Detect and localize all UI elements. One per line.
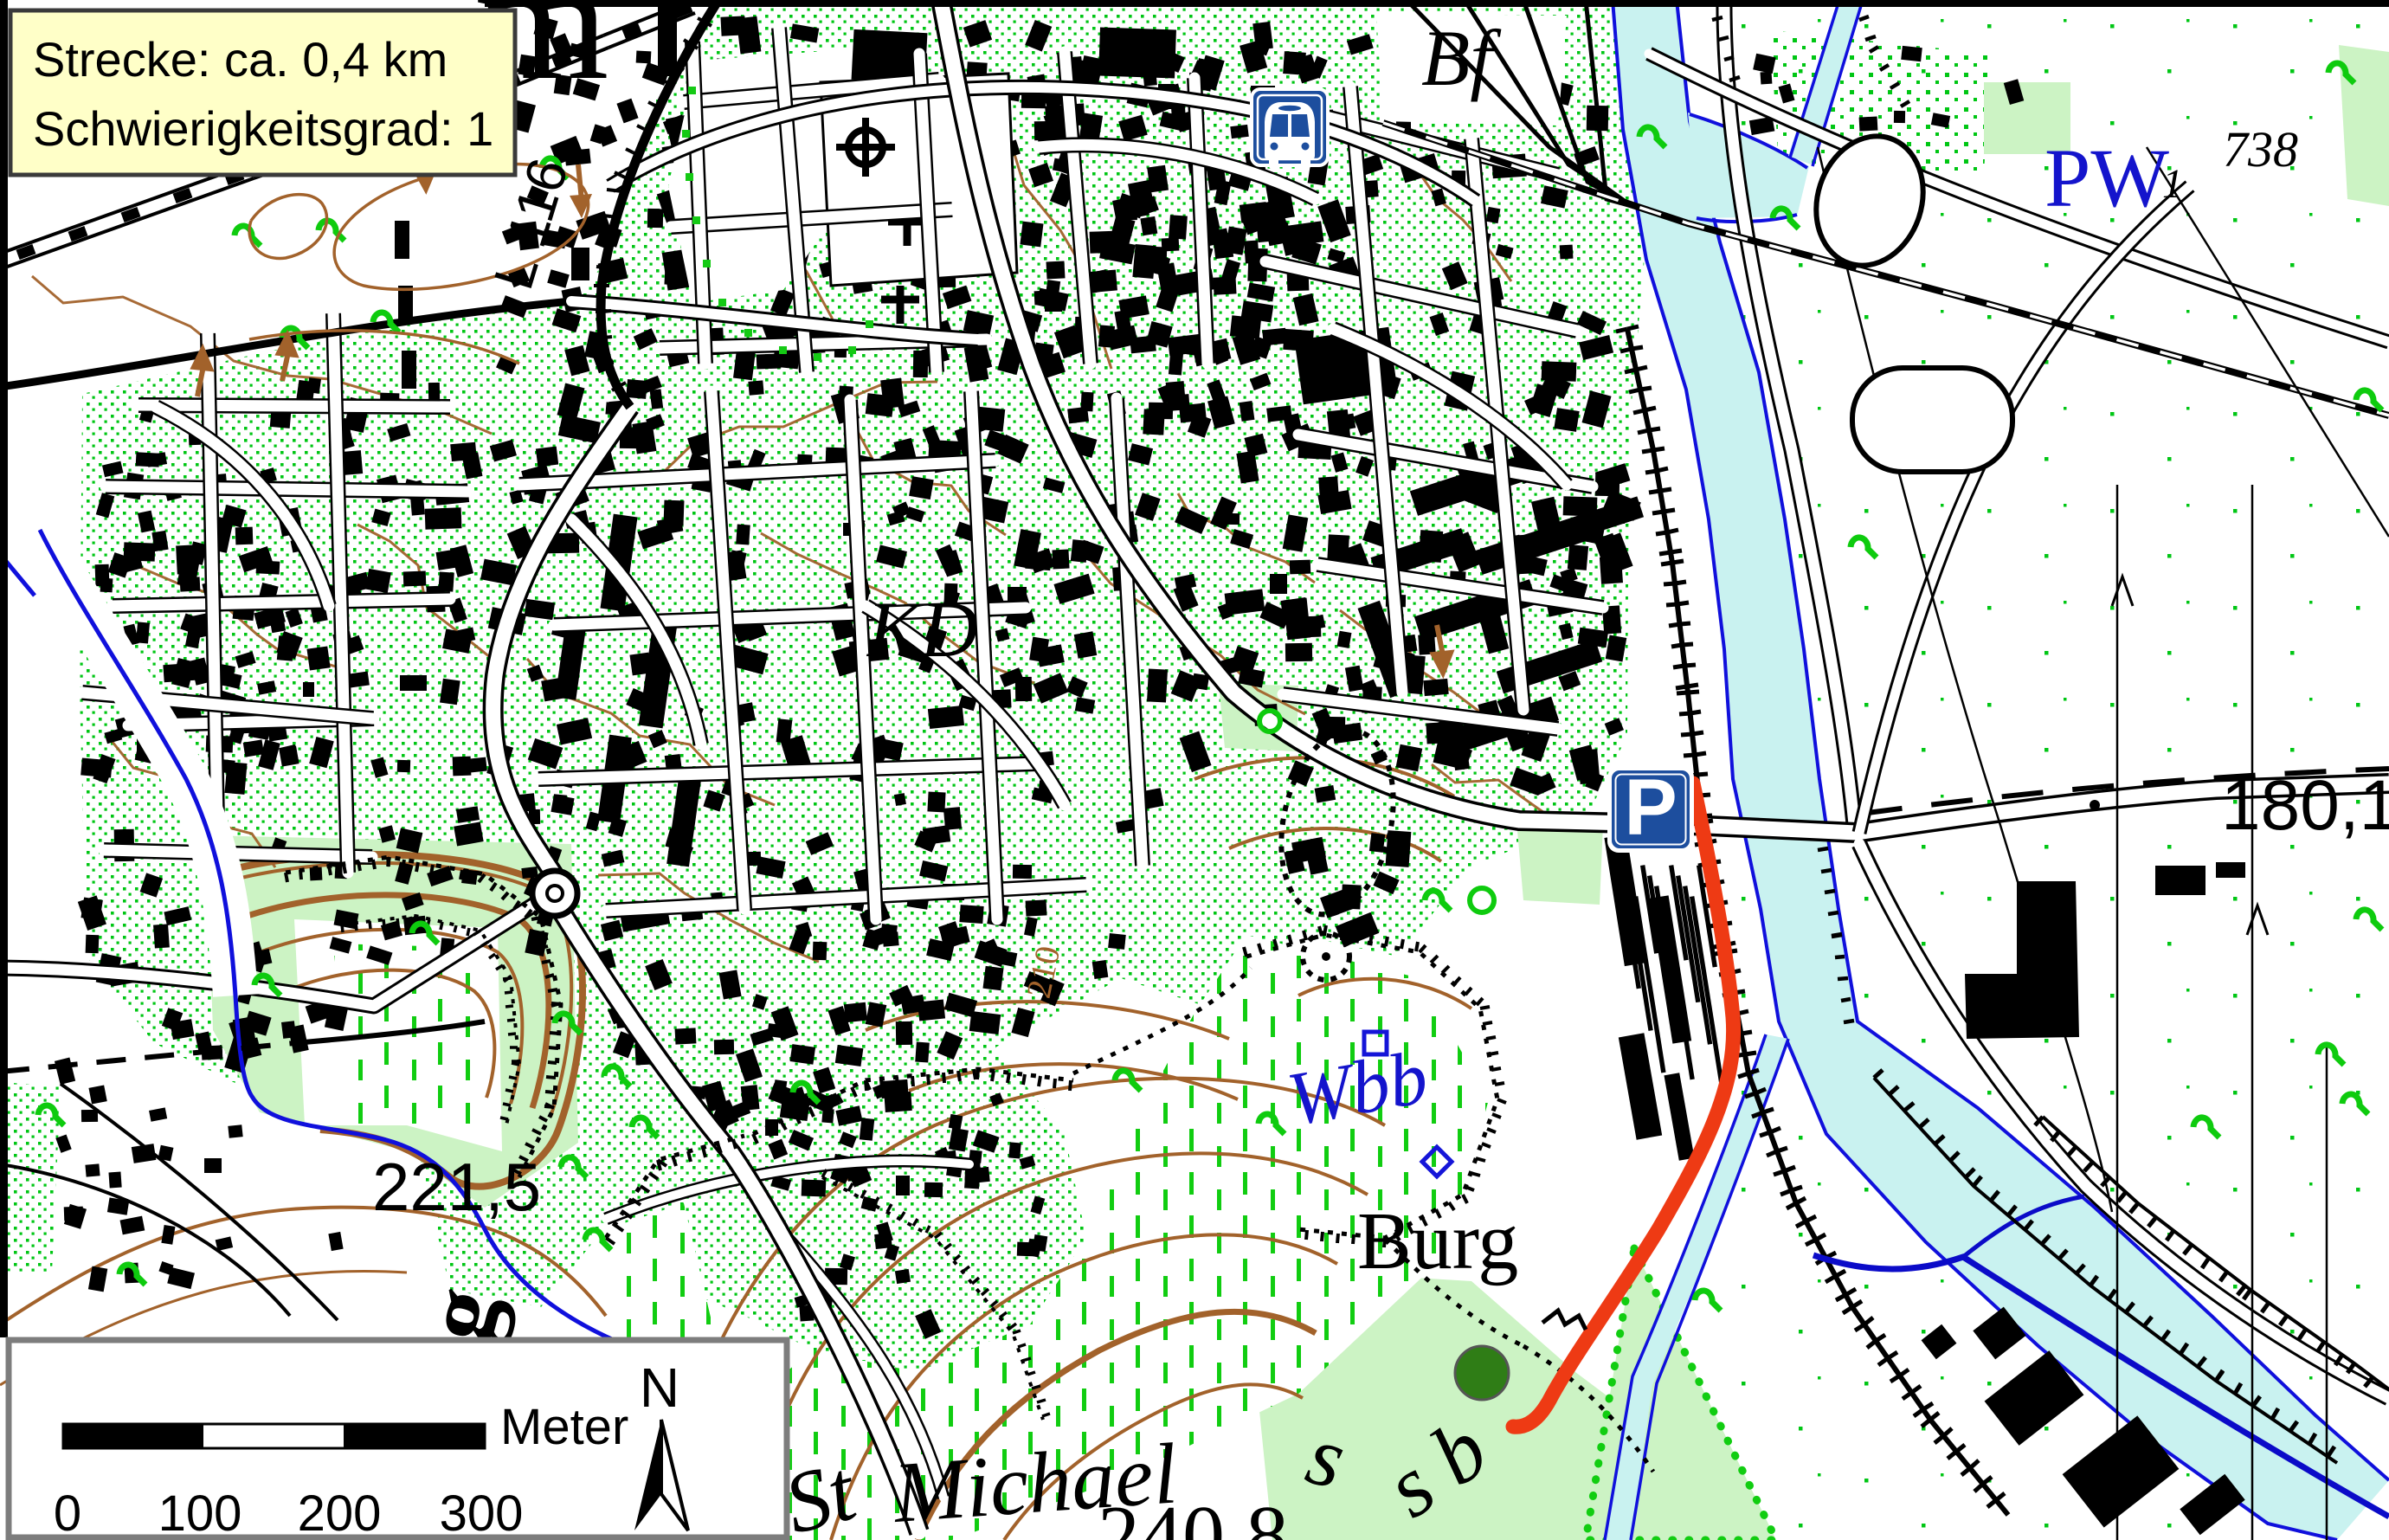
svg-text:738: 738 [2223,121,2298,177]
svg-text:Meter: Meter [500,1399,628,1455]
svg-text:P: P [1624,764,1677,852]
svg-text:180,1: 180,1 [2221,766,2389,845]
svg-text:240 8: 240 8 [1098,1489,1289,1540]
svg-text:0: 0 [54,1485,81,1540]
svg-text:N: N [640,1356,679,1419]
svg-text:PW: PW [2044,132,2169,224]
svg-text:Bf: Bf [1421,14,1502,102]
svg-text:200: 200 [298,1485,382,1540]
svg-text:1: 1 [2162,161,2183,207]
svg-text:221,5: 221,5 [372,1149,541,1225]
svg-text:KD: KD [866,585,978,673]
svg-text:100: 100 [158,1485,242,1540]
svg-text:300: 300 [440,1485,524,1540]
svg-text:Strecke: ca. 0,4 km: Strecke: ca. 0,4 km [33,32,448,87]
svg-text:Burg: Burg [1357,1196,1518,1286]
svg-text:Schwierigkeitsgrad: 1: Schwierigkeitsgrad: 1 [33,101,493,156]
